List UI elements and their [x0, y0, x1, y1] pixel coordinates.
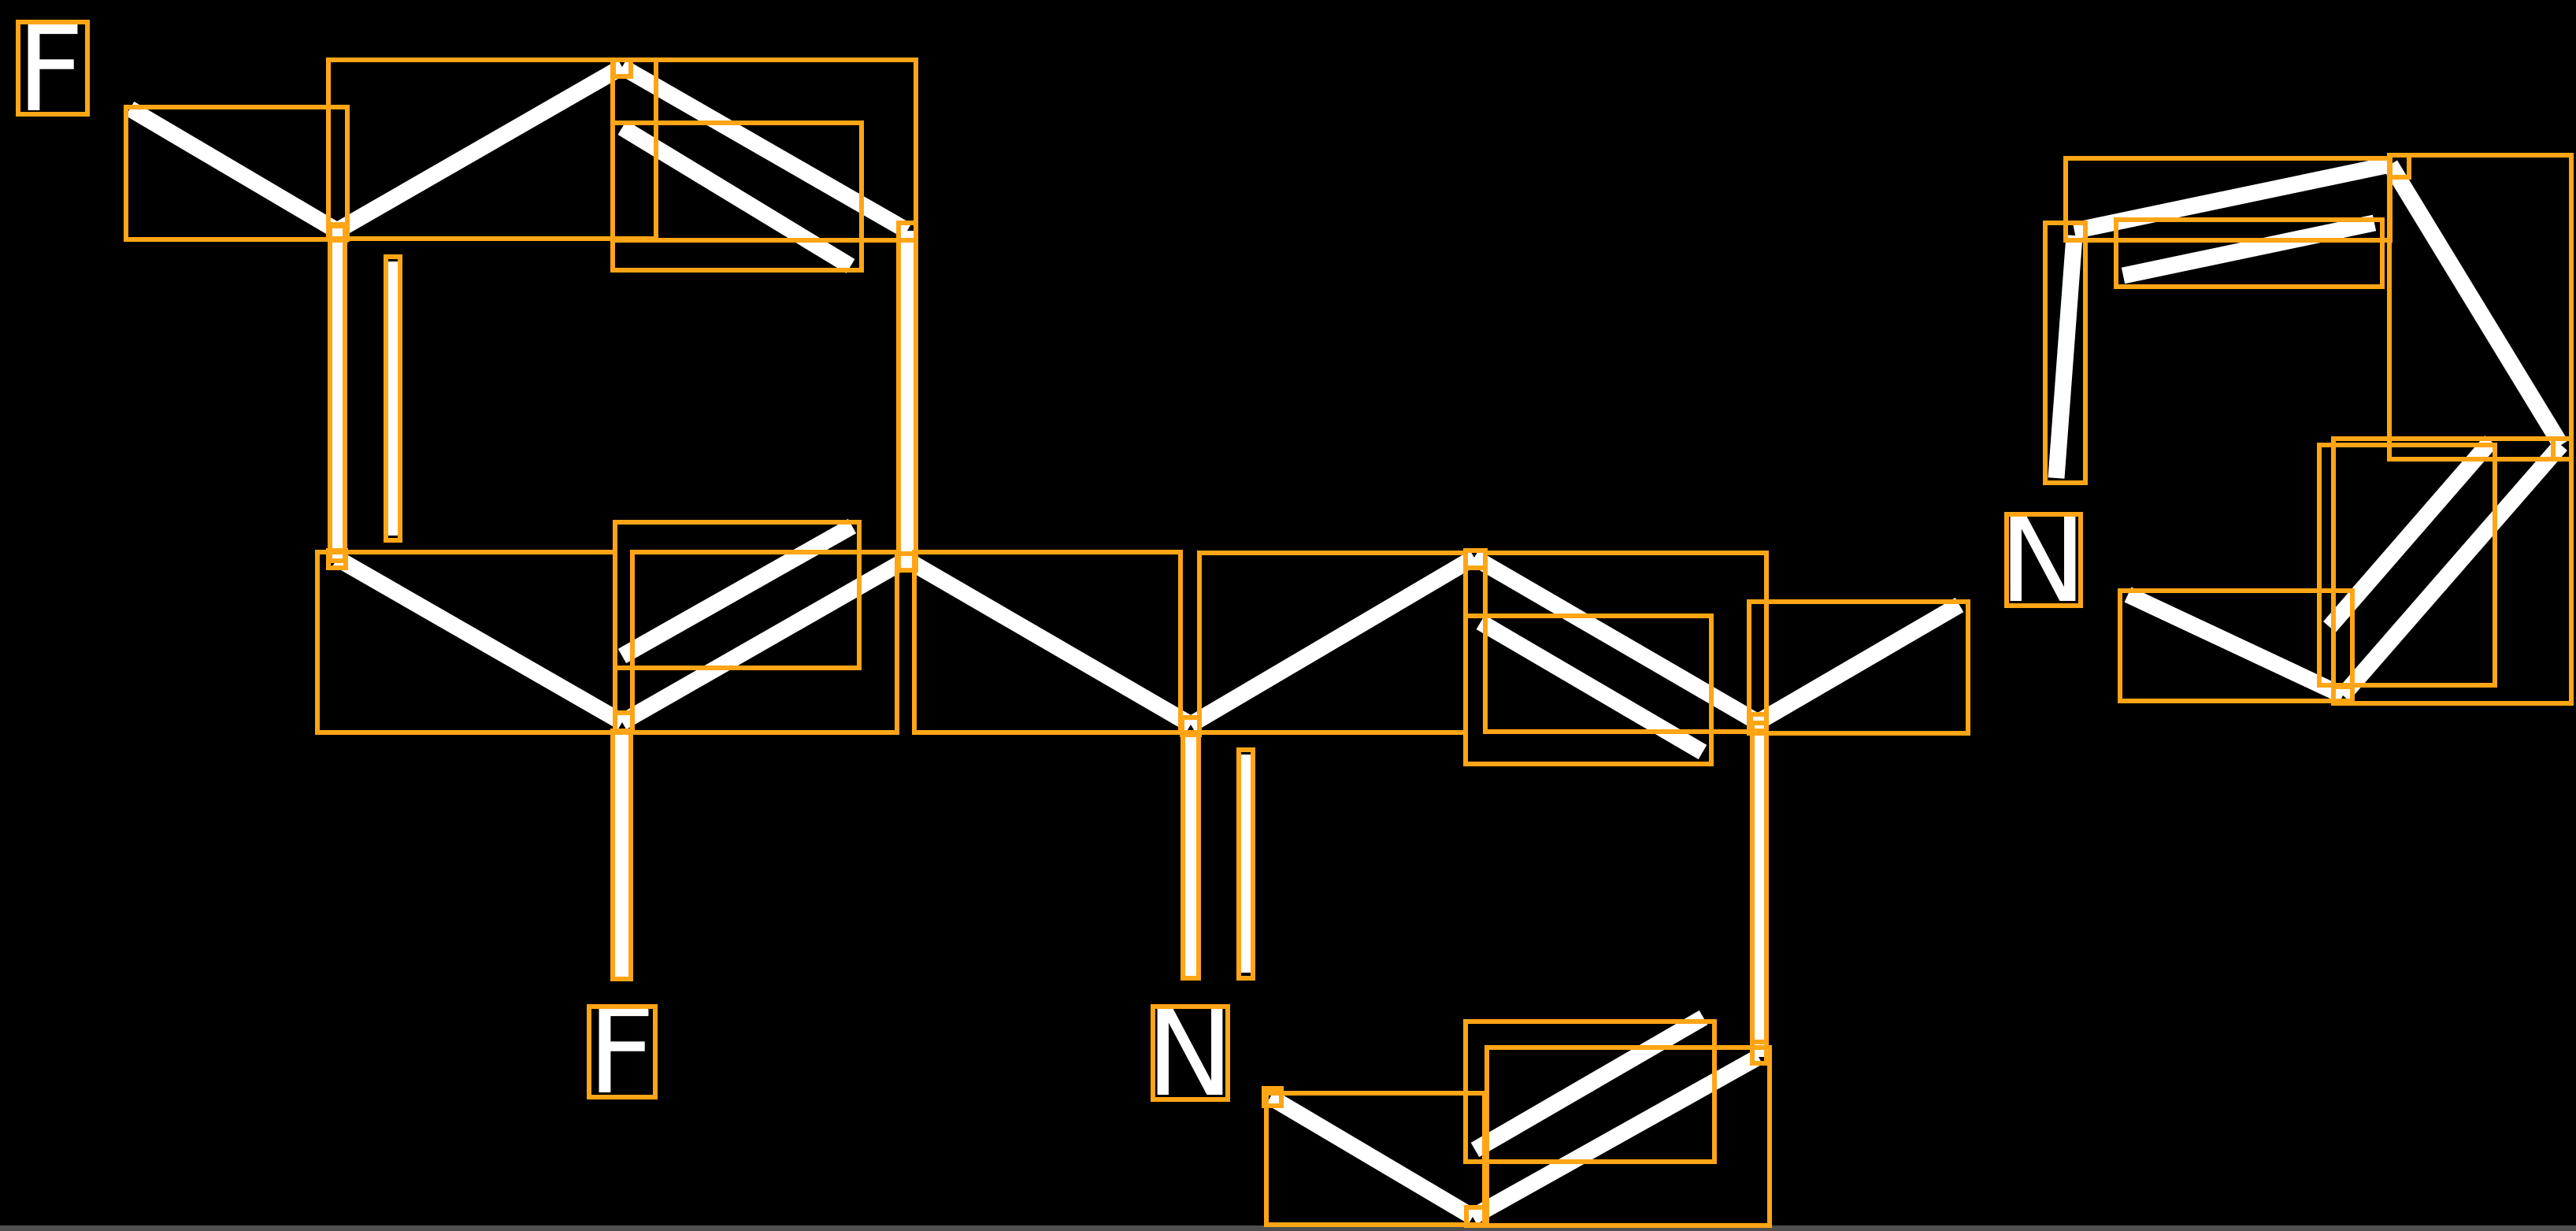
molecule-annotation-canvas: FFNN: [0, 0, 2576, 1231]
molecule-svg: FFNN: [0, 0, 2576, 1231]
